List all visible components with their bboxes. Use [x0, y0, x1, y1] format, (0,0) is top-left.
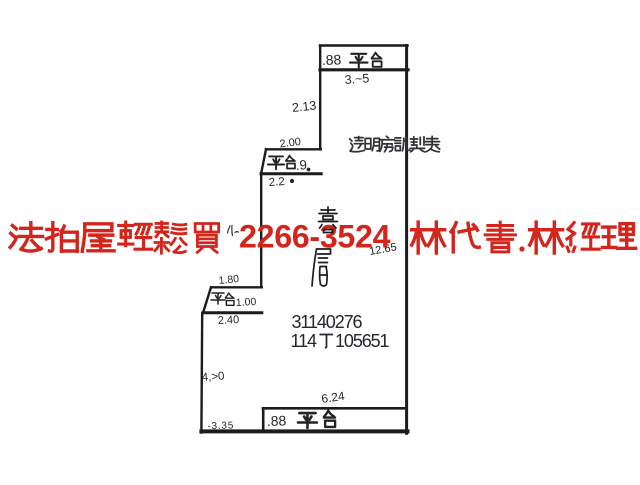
svg-text:2.40: 2.40 — [218, 314, 240, 327]
svg-text:105651: 105651 — [335, 331, 390, 351]
svg-text:1.00: 1.00 — [236, 296, 257, 309]
svg-text:114: 114 — [291, 331, 317, 351]
svg-text:2.13: 2.13 — [291, 99, 317, 115]
svg-text:31140276: 31140276 — [292, 312, 363, 332]
svg-text:1.80: 1.80 — [218, 273, 240, 287]
svg-text:2266-3524: 2266-3524 — [239, 219, 391, 255]
svg-text:2.2: 2.2 — [268, 176, 285, 189]
svg-text:3.~5: 3.~5 — [344, 71, 370, 87]
svg-text:.88: .88 — [322, 51, 342, 68]
svg-text:.9: .9 — [295, 157, 307, 173]
svg-text:-3.35: -3.35 — [207, 420, 234, 432]
svg-text:.88: .88 — [267, 412, 287, 429]
svg-text:4,>0: 4,>0 — [201, 370, 224, 384]
